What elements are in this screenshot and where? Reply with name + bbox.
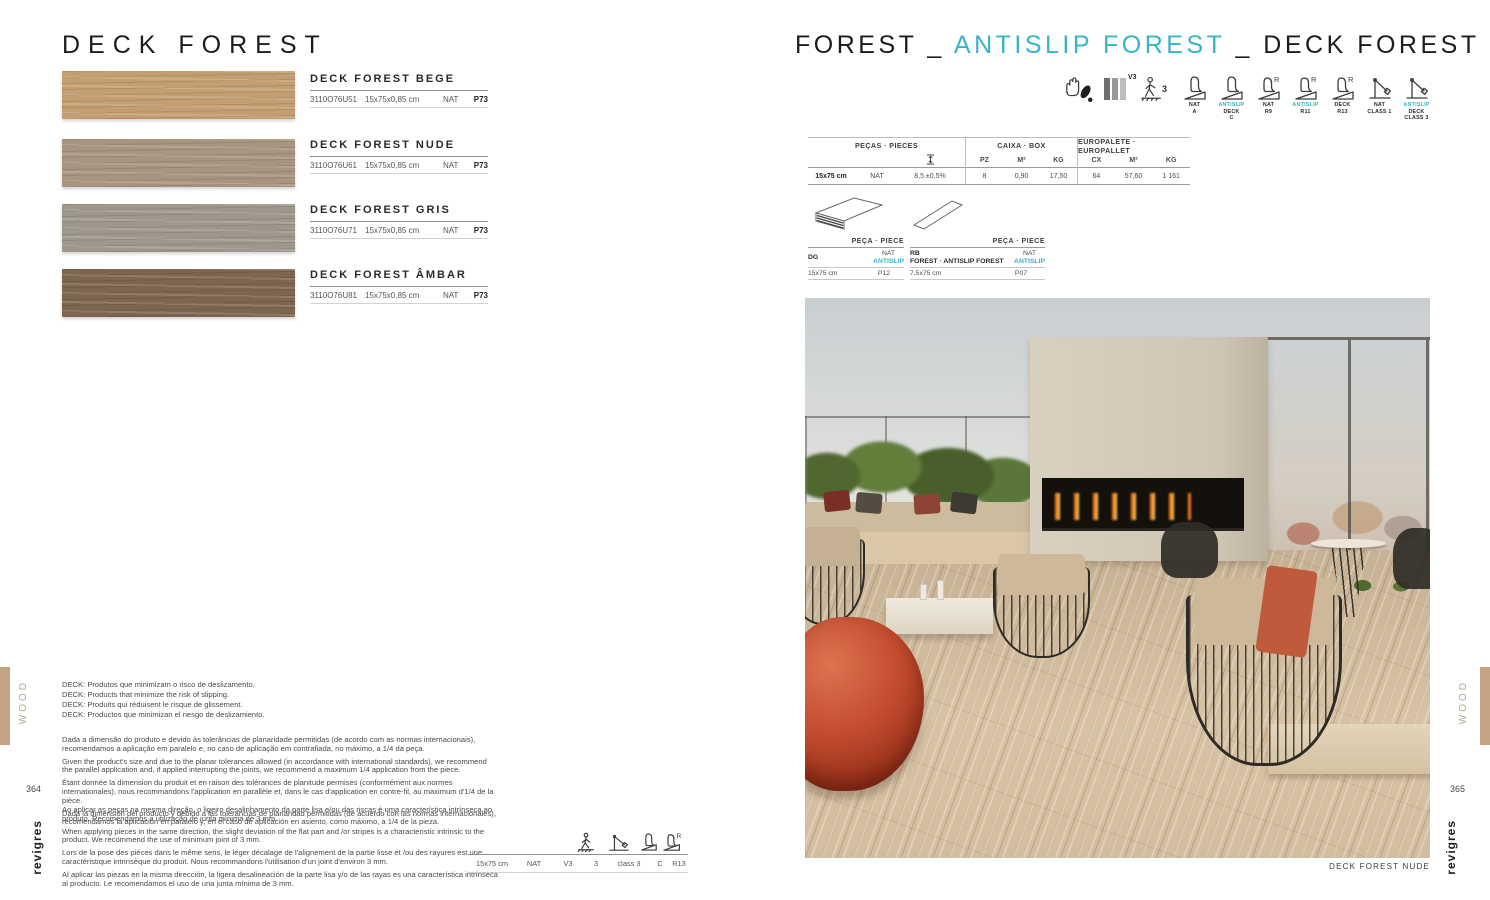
piece-size: 7,5x75 cm: [910, 270, 941, 277]
spec-barefoot: C: [650, 859, 670, 868]
right-margin-color-block: [1480, 667, 1490, 745]
piece-header: PEÇA · PIECE: [910, 238, 1045, 248]
thickness-icon: [900, 154, 960, 167]
cert-label: NAT: [1367, 102, 1391, 109]
joint-es: Al aplicar las piezas en la misma direcc…: [62, 871, 498, 888]
svg-text:R: R: [1274, 75, 1280, 84]
joint-fr: Lors de la pose des pièces dans le même …: [62, 849, 498, 866]
piece-code: DG: [808, 254, 818, 262]
spec-traffic: 3: [584, 859, 608, 868]
joint-pt: Ao aplicar as peças na mesma direção, o …: [62, 806, 498, 823]
cert-label: A: [1189, 109, 1200, 116]
product-spec-row: 3110O76U51 15x75x0,85 cm NAT P73: [310, 90, 488, 108]
piece-finish-antislip: ANTISLIP: [1014, 258, 1045, 265]
cert-deck-r13: R DECK R13: [1324, 74, 1361, 122]
foot-traffic-3-icon: 3: [1140, 76, 1164, 107]
product-swatch-ambar: [62, 269, 295, 317]
product-size: 15x75x0,85 cm: [365, 291, 443, 300]
svg-text:R: R: [1311, 75, 1317, 84]
pendulum-icon: [1367, 74, 1393, 102]
summary-spec-table: 15x75 cm NAT V3 3 class 3 C R13: [468, 854, 688, 873]
joint-en: When applying pieces in the same directi…: [62, 828, 498, 845]
product-size: 15x75x0,85 cm: [365, 161, 443, 170]
product-size: 15x75x0,85 cm: [365, 226, 443, 235]
shade-bar: [1112, 78, 1118, 100]
photo-firebox: [1042, 478, 1244, 530]
left-brand-logo: revigres: [30, 820, 44, 875]
cert-antislip-r11: R ANTISLIP R11: [1287, 74, 1324, 122]
col-header: KG: [1152, 157, 1190, 164]
cert-label: DECK: [1218, 109, 1244, 116]
group-header: PEÇAS · PIECES: [808, 138, 965, 153]
spec-class: class 3: [608, 859, 650, 868]
product-name: DECK FOREST BEGE: [310, 73, 488, 85]
barefoot-ramp-icon: [1183, 74, 1207, 102]
cert-antislip-deck-class3: ANTISLIP DECK CLASS 3: [1398, 74, 1435, 122]
shod-ramp-r-icon: R: [1294, 74, 1318, 102]
title-forest: FOREST: [795, 31, 917, 59]
title-separator: _: [927, 31, 944, 59]
flatness-fr: Étant donnée la dimension du produit et …: [62, 779, 498, 805]
deck-note-pt: DECK: Produtos que minimizam o risco de …: [62, 680, 498, 689]
product-finish: NAT: [443, 161, 471, 170]
cert-label: DECK: [1334, 102, 1350, 109]
svg-text:R: R: [677, 833, 682, 840]
col-header: PZ: [966, 157, 1003, 164]
cert-nat-a: NAT A: [1176, 74, 1213, 122]
row-kg-box: 17,50: [1040, 173, 1077, 180]
deck-note-es: DECK: Productos que minimizan el riesgo …: [62, 710, 498, 719]
catalog-spread: WOOD 364 revigres WOOD 365 revigres DECK…: [0, 0, 1490, 900]
shade-bar: [1120, 78, 1126, 100]
product-price: P73: [471, 226, 488, 235]
product-finish: NAT: [443, 291, 471, 300]
product-code: 3110O76U51: [310, 95, 365, 104]
piece-finish-nat: NAT: [1023, 250, 1036, 257]
sofa-pillow: [950, 491, 978, 514]
hand-shoe-icon: [1063, 74, 1095, 109]
product-entry: DECK FOREST NUDE 3110O76U61 15x75x0,85 c…: [310, 139, 488, 174]
piece-price: P12: [878, 270, 890, 277]
shade-variation-value: V3: [1128, 74, 1137, 81]
product-entry: DECK FOREST BEGE 3110O76U51 15x75x0,85 c…: [310, 73, 488, 108]
spec-finish: NAT: [516, 859, 552, 868]
title-separator: _: [1235, 31, 1252, 59]
col-header: KG: [1040, 157, 1077, 164]
photo-side-chair: [1393, 528, 1431, 590]
product-price: P73: [471, 291, 488, 300]
row-kg-pallet: 1 161: [1152, 173, 1190, 180]
photo-fireplace: [1030, 337, 1268, 561]
row-finish: NAT: [854, 173, 900, 180]
col-header: M²: [1003, 157, 1040, 164]
left-margin-color-block: [0, 667, 10, 745]
photo-caption: DECK FOREST NUDE: [1130, 862, 1430, 871]
product-size: 15x75x0,85 cm: [365, 95, 443, 104]
cert-label: CLASS 1: [1367, 109, 1391, 116]
right-page-title: FOREST _ ANTISLIP FOREST _ DECK FOREST: [795, 31, 1480, 60]
table-group-box: CAIXA · BOX PZ M² KG 8 0,90 17,50: [965, 138, 1077, 184]
deck-note-en: DECK: Products that minimize the risk of…: [62, 690, 498, 699]
cert-label: R13: [1334, 109, 1350, 116]
col-header: CX: [1078, 157, 1115, 164]
group-header: EUROPALETE · EUROPALLET: [1078, 138, 1190, 153]
row-cx: 64: [1078, 173, 1115, 180]
photo-flames: [1050, 493, 1191, 520]
spec-shade: V3: [552, 859, 584, 868]
product-code: 3110O76U61: [310, 161, 365, 170]
product-swatch-nude: [62, 139, 295, 187]
step-tile-drawing: [808, 193, 886, 233]
cert-antislip-deck-c: ANTISLIP DECK C: [1213, 74, 1250, 122]
cert-nat-class1: NAT CLASS 1: [1361, 74, 1398, 122]
piece-code: RB: [910, 250, 920, 257]
right-page-number: 365: [1450, 784, 1465, 794]
product-code: 3110O76U71: [310, 226, 365, 235]
flatness-en: Given the product's size and due to the …: [62, 758, 498, 775]
piece-price: P07: [1015, 270, 1027, 277]
piece-size: 15x75 cm: [808, 270, 837, 277]
product-spec-row: 3110O76U81 15x75x0,85 cm NAT P73: [310, 286, 488, 304]
joint-paragraphs: Ao aplicar as peças na mesma direção, o …: [62, 806, 498, 893]
page-title: DECK FOREST: [62, 31, 328, 60]
skirting-drawing: [910, 193, 966, 233]
product-price: P73: [471, 95, 488, 104]
cert-label: ANTISLIP: [1218, 102, 1244, 109]
piece-name2: FOREST · ANTISLIP FOREST: [910, 258, 1004, 265]
shade-bar: [1104, 78, 1110, 100]
cert-label: NAT: [1263, 102, 1274, 109]
product-swatch-bege: [62, 71, 295, 119]
deck-note-fr: DECK: Produits qui réduisent le risque d…: [62, 700, 498, 709]
sofa-pillow: [823, 490, 851, 513]
packaging-table: PEÇAS · PIECES 15x75 cm NAT 8,5 ±0,5% CA…: [808, 137, 1190, 185]
left-wood-label: WOOD: [18, 680, 29, 724]
cert-nat-r9: R NAT R9: [1250, 74, 1287, 122]
row-thickness: 8,5 ±0,5%: [900, 173, 960, 180]
piece-dg-section: PEÇA · PIECE DG NAT ANTISLIP 15x75 cm P1…: [808, 193, 904, 280]
product-spec-row: 3110O76U61 15x75x0,85 cm NAT P73: [310, 156, 488, 174]
right-brand-logo: revigres: [1444, 820, 1458, 875]
cert-label: C: [1218, 115, 1244, 122]
product-entry: DECK FOREST GRIS 3110O76U71 15x75x0,85 c…: [310, 204, 488, 239]
product-entry: DECK FOREST ÂMBAR 3110O76U81 15x75x0,85 …: [310, 269, 488, 304]
product-spec-row: 3110O76U71 15x75x0,85 cm NAT P73: [310, 221, 488, 239]
product-name: DECK FOREST GRIS: [310, 204, 488, 216]
cert-label: NAT: [1189, 102, 1200, 109]
flatness-pt: Dada a dimensão do produto e devido às t…: [62, 736, 498, 753]
certification-icons: NAT A ANTISLIP DECK C R NAT: [1176, 74, 1435, 122]
title-antislip-forest: ANTISLIP FOREST: [954, 31, 1225, 59]
deck-notes: DECK: Produtos que minimizam o risco de …: [62, 680, 498, 720]
left-page-number: 364: [26, 784, 41, 794]
table-group-pieces: PEÇAS · PIECES 15x75 cm NAT 8,5 ±0,5%: [808, 138, 965, 184]
cert-label: R9: [1263, 109, 1274, 116]
product-price: P73: [471, 161, 488, 170]
cert-label: ANTISLIP: [1403, 102, 1429, 109]
spec-r-value: R13: [670, 859, 688, 868]
cert-label: CLASS 3: [1403, 115, 1429, 122]
piece-rb-section: PEÇA · PIECE RB FOREST · ANTISLIP FOREST…: [910, 193, 1045, 280]
product-name: DECK FOREST ÂMBAR: [310, 269, 488, 281]
photo-coffee-table: [886, 598, 992, 634]
product-finish: NAT: [443, 95, 471, 104]
row-m2-pallet: 57,60: [1115, 173, 1153, 180]
title-deck-forest: DECK FOREST: [1263, 31, 1479, 59]
row-size: 15x75 cm: [808, 173, 854, 180]
shade-variation-v3-icon: V3: [1104, 78, 1126, 100]
spec-size: 15x75 cm: [468, 859, 516, 868]
product-name: DECK FOREST NUDE: [310, 139, 488, 151]
traffic-value: 3: [1162, 84, 1167, 94]
table-group-pallet: EUROPALETE · EUROPALLET CX M² KG 64 57,6…: [1077, 138, 1190, 184]
barefoot-ramp-icon: [1220, 74, 1244, 102]
col-header: M²: [1115, 157, 1153, 164]
shod-ramp-r-icon: R: [1257, 74, 1281, 102]
row-m2-box: 0,90: [1003, 173, 1040, 180]
piece-finish-antislip: ANTISLIP: [873, 258, 904, 265]
piece-header: PEÇA · PIECE: [808, 238, 904, 248]
piece-code-name: RB FOREST · ANTISLIP FOREST: [910, 250, 1004, 265]
product-finish: NAT: [443, 226, 471, 235]
shod-ramp-r-icon: R: [1331, 74, 1355, 102]
ambience-photo: [805, 298, 1430, 858]
pendulum-icon: [1404, 74, 1430, 102]
cert-label: R11: [1292, 109, 1318, 116]
group-header: CAIXA · BOX: [966, 138, 1077, 153]
cert-label: ANTISLIP: [1292, 102, 1318, 109]
piece-finish-nat: NAT: [882, 250, 895, 257]
sofa-pillow: [855, 491, 883, 513]
right-wood-label: WOOD: [1458, 680, 1469, 724]
svg-text:R: R: [1348, 75, 1354, 84]
photo-side-chair: [1161, 522, 1217, 578]
product-swatch-gris: [62, 204, 295, 252]
row-pz: 8: [966, 173, 1003, 180]
sofa-pillow: [913, 493, 940, 515]
product-code: 3110O76U81: [310, 291, 365, 300]
cert-label: DECK: [1403, 109, 1429, 116]
